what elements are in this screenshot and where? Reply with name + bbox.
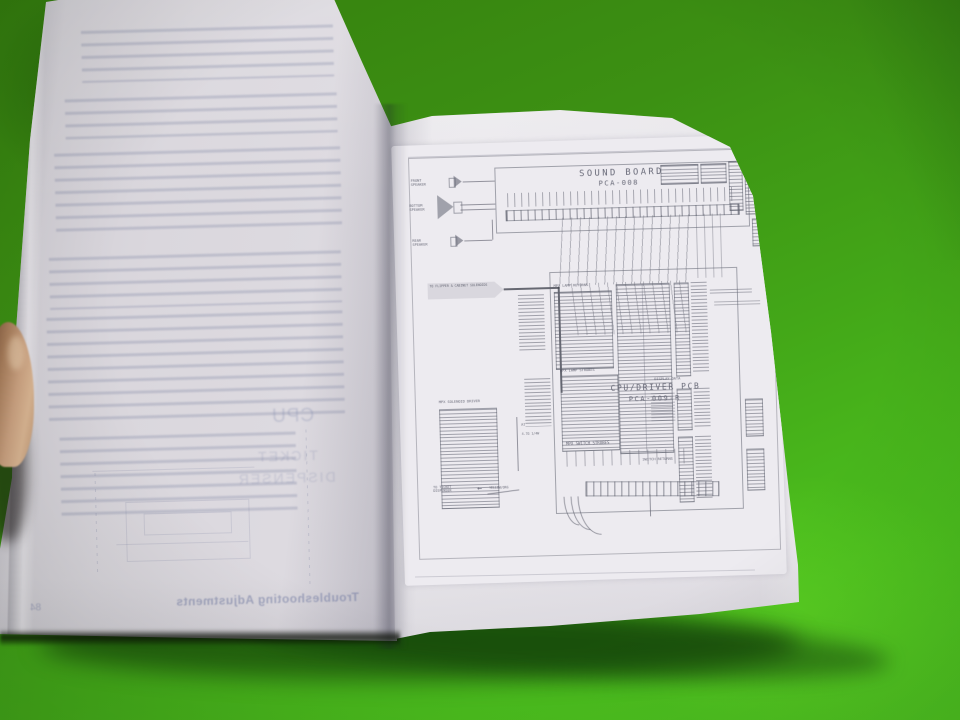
vignette (0, 0, 960, 720)
photo-of-open-manual: CPU TICKET DISPENSER Troubleshooting Adj… (0, 0, 960, 720)
